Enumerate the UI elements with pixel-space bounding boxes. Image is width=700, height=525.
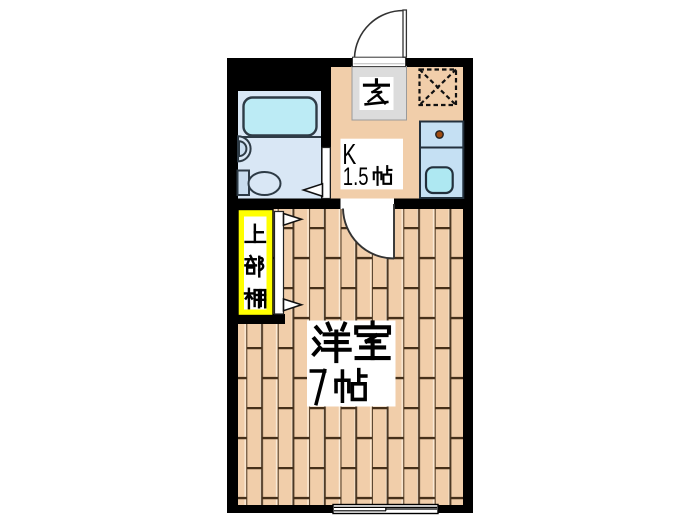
svg-text:1.5: 1.5	[343, 162, 369, 190]
